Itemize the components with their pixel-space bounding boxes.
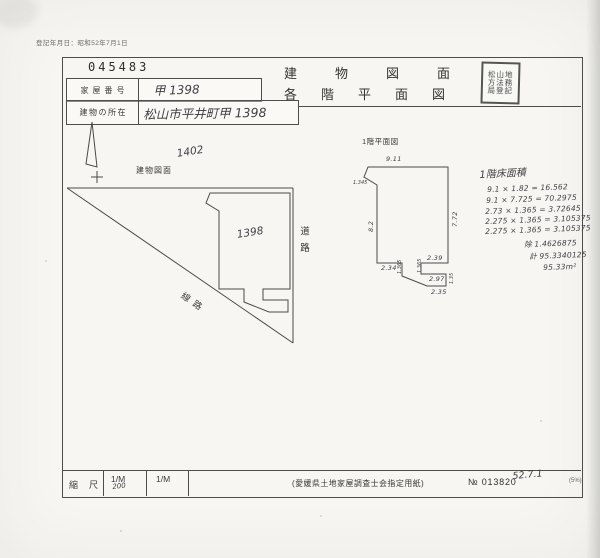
footer-cell-divider bbox=[188, 470, 189, 496]
dim-bottom-right-mid: 2.97 bbox=[429, 275, 445, 283]
dim-bottom-right-upper: 2.39 bbox=[427, 254, 443, 262]
scale-label: 縮尺 bbox=[69, 478, 109, 491]
drawing-linework bbox=[0, 0, 600, 558]
scanned-registry-sheet: 登記年月日：昭和52年7月1日 045483 家屋番号 甲 1398 建物の所在… bbox=[0, 0, 600, 558]
dim-notch: 1.345 bbox=[353, 180, 367, 186]
designated-paper-note: (愛媛県土地家屋調査士会指定用紙) bbox=[292, 478, 424, 489]
area-calc-total: 計 95.3340125 bbox=[529, 249, 587, 262]
area-calc-title: 1階床面積 bbox=[479, 164, 526, 181]
dim-top: 9.11 bbox=[386, 155, 402, 163]
scale1-value: 200 bbox=[112, 482, 126, 491]
dim-side-small: 1.35 bbox=[449, 273, 455, 284]
north-arrow-cross bbox=[91, 171, 103, 183]
dim-right: 7.72 bbox=[451, 211, 459, 227]
area-calc-deduction: 除 1.4626875 bbox=[524, 237, 577, 250]
scale2-printed: 1/M bbox=[156, 474, 170, 484]
floor-plan-label: 1階平面図 bbox=[362, 136, 399, 147]
site-building-outline bbox=[206, 193, 290, 312]
site-plan-label: 建物図面 bbox=[136, 165, 172, 176]
area-calc-result: 95.33m² bbox=[543, 262, 576, 272]
dim-left: 8.2 bbox=[367, 221, 375, 232]
footer-cell-divider bbox=[146, 470, 147, 496]
dim-bottom-left: 2.34 bbox=[381, 264, 397, 272]
corner-note: (5%) bbox=[569, 478, 582, 484]
road-label: 道路 bbox=[296, 226, 310, 259]
dim-drop-right: 1.365 bbox=[417, 259, 423, 273]
form-number: № 013820 bbox=[468, 477, 517, 487]
dim-bottom-right-lower: 2.35 bbox=[431, 288, 447, 296]
dim-drop-left: 1.365 bbox=[397, 260, 403, 274]
lot-boundary-lines bbox=[67, 188, 293, 343]
footer-top-line bbox=[62, 470, 581, 471]
north-arrow bbox=[86, 122, 97, 167]
floor-plan-outline bbox=[364, 167, 448, 286]
